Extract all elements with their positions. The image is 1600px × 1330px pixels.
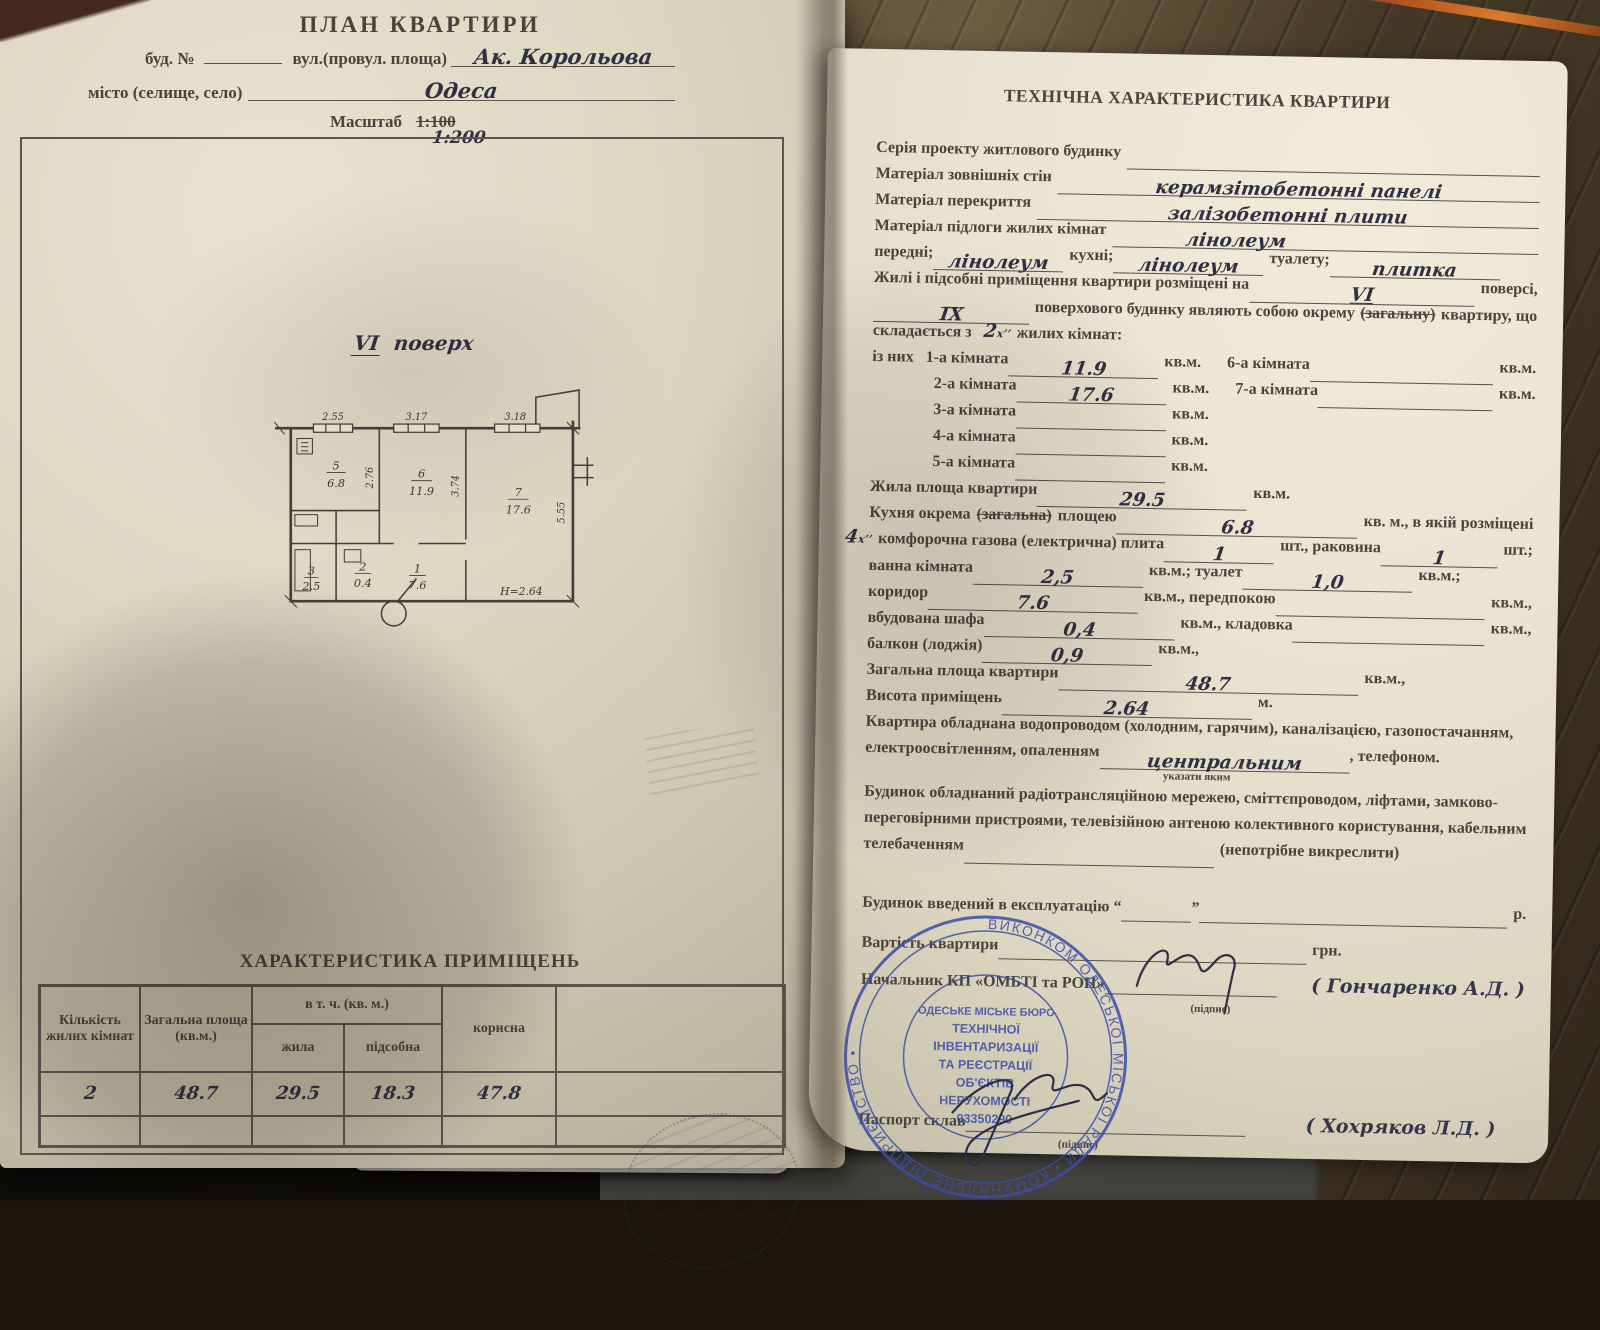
author-signature (947, 1050, 1169, 1184)
commission-date-field (1199, 900, 1507, 929)
heating-field: центральним (1099, 746, 1349, 774)
room5-number: 5 (332, 458, 339, 472)
floor-word: поверх (392, 331, 475, 355)
sink-icon (295, 515, 318, 526)
building-number-label: буд. № (145, 49, 194, 69)
street-field: Ак. Корольова (451, 48, 675, 67)
table-title: ХАРАКТЕРИСТИКА ПРИМІЩЕНЬ (38, 951, 782, 973)
td-blank (556, 1072, 784, 1116)
floor-plan: 2.55 3.17 3.18 2.76 3.74 5.55 5 6.8 6 11… (272, 387, 602, 627)
storeys-field: ІХ (873, 299, 1029, 325)
room4-field (1015, 432, 1165, 458)
floor-caption: VI поверх (352, 331, 474, 356)
chief-signature (1130, 934, 1312, 1027)
toilet-floor-field: плитка (1329, 255, 1499, 281)
td-empty (344, 1116, 442, 1146)
th-auxiliary: підсобна (344, 1024, 442, 1072)
right-page-technical: ТЕХНІЧНА ХАРАКТЕРИСТИКА КВАРТИРИ Серія п… (808, 48, 1568, 1163)
room1-field: 11.9 (1008, 353, 1158, 379)
td-living: 29.5 (252, 1072, 344, 1116)
walls-value: керамзітобетонні панелі (1154, 181, 1442, 200)
dim-room7-side: 5.55 (557, 502, 568, 524)
td-total-area: 48.7 (140, 1072, 252, 1116)
dim-kitchen-side: 2.76 (365, 467, 376, 490)
kitchen-floor-field: лінолеум (1113, 251, 1263, 277)
floor-number: VI (350, 331, 382, 356)
ceilings-value: залізобетонні плити (1167, 208, 1408, 226)
windows (313, 424, 540, 432)
stove-icon (297, 438, 312, 453)
anteroom-field (1275, 593, 1485, 620)
svg-text:ТЕХНІЧНОЇ: ТЕХНІЧНОЇ (952, 1020, 1021, 1036)
building-street-line: буд. № вул.(провул. площа) Ак. Корольова (145, 48, 675, 69)
td-useful: 47.8 (442, 1072, 556, 1116)
dim-room6-side: 3.74 (451, 475, 462, 497)
building-number-field (204, 63, 282, 64)
balcony-field: 0,9 (982, 640, 1152, 666)
bathroom-field: 2,5 (973, 561, 1143, 587)
svg-text:ОДЕСЬКЕ МІСЬКЕ БЮРО: ОДЕСЬКЕ МІСЬКЕ БЮРО (918, 1005, 1055, 1020)
room3-field (1016, 406, 1166, 432)
toilet-field: 1,0 (1242, 566, 1412, 592)
dim-top-kitchen: 2.55 (321, 412, 344, 423)
room7-field (1318, 385, 1493, 411)
faint-pencil-mark (644, 723, 760, 794)
td-empty (252, 1116, 344, 1146)
room3-area: 2.5 (301, 579, 320, 593)
dim-top-room6: 3.17 (406, 412, 429, 423)
right-page-title: ТЕХНІЧНА ХАРАКТЕРИСТИКА КВАРТИРИ (827, 82, 1567, 117)
city-field: Одеса (248, 82, 675, 101)
closet-field: 0,4 (984, 614, 1174, 640)
plan-frame: VI поверх (20, 137, 784, 1155)
room2-number: 2 (358, 559, 366, 573)
sink-count-field: 1 (1381, 543, 1498, 568)
crossed-word: (загальна) (976, 506, 1051, 525)
th-useful: корисна (442, 986, 556, 1072)
td-room-count: 2 (40, 1072, 140, 1116)
crossed-word: (загальну) (1360, 304, 1435, 323)
city-label: місто (селище, село) (88, 83, 242, 103)
balcony-circle (381, 601, 406, 626)
room5-area: 6.8 (327, 476, 345, 490)
hall-floor-field: лінолеум (933, 247, 1063, 272)
dim-top-room7: 3.18 (504, 412, 526, 423)
th-living: жила (252, 1024, 344, 1072)
left-page-plan: ПЛАН КВАРТИРИ буд. № вул.(провул. площа)… (0, 0, 845, 1168)
floors-value: лінолеум (1184, 234, 1286, 250)
td-auxiliary: 18.3 (344, 1072, 442, 1116)
chief-name: ( Гончаренко А.Д. ) (1311, 975, 1525, 1001)
city-line: місто (селище, село) Одеса (88, 82, 675, 103)
floor-plan-svg: 2.55 3.17 3.18 2.76 3.74 5.55 5 6.8 6 11… (272, 387, 602, 630)
author-name: ( Хохряков Л.Д. ) (1305, 1115, 1495, 1140)
room7-number: 7 (515, 485, 523, 499)
street-value: Ак. Корольова (473, 48, 654, 66)
stove-count-field: 1 (1164, 539, 1274, 564)
room6-number: 6 (418, 467, 425, 481)
room1-area: 7.6 (408, 578, 426, 592)
room2-area: 0.4 (354, 576, 372, 590)
room5-field (1015, 458, 1165, 484)
td-empty (140, 1116, 252, 1146)
ceiling-height-note: Н=2.64 (499, 585, 543, 598)
th-blank (556, 986, 784, 1072)
room1-number: 1 (414, 561, 421, 575)
th-including-group: в т. ч. (кв. м.) (252, 986, 442, 1024)
fixtures (295, 438, 361, 590)
room7-area: 17.6 (506, 503, 531, 517)
right-ledge (573, 457, 594, 486)
city-value: Одеса (424, 82, 499, 100)
pantry-field (1292, 619, 1484, 646)
page-title: ПЛАН КВАРТИРИ (140, 12, 700, 38)
room3-number: 3 (308, 563, 315, 577)
th-room-count: Кількість жилих кімнат (40, 986, 140, 1072)
form-body: Серія проекту житлового будинку Матеріал… (863, 139, 1540, 874)
street-label: вул.(провул. площа) (292, 49, 447, 69)
photo-of-apartment-plan-document: { "left": { "title": "ПЛАН КВАРТИРИ", "f… (0, 0, 1600, 1200)
cable-tv-field (964, 840, 1214, 868)
td-empty (442, 1116, 556, 1146)
room2-field: 17.6 (1016, 379, 1166, 405)
td-empty (40, 1116, 140, 1146)
room6-area: 11.9 (409, 484, 434, 498)
th-total-area: Загальна площа (кв.м.) (140, 986, 252, 1072)
room6-field (1310, 359, 1494, 385)
scale-label: Масштаб (330, 112, 402, 132)
